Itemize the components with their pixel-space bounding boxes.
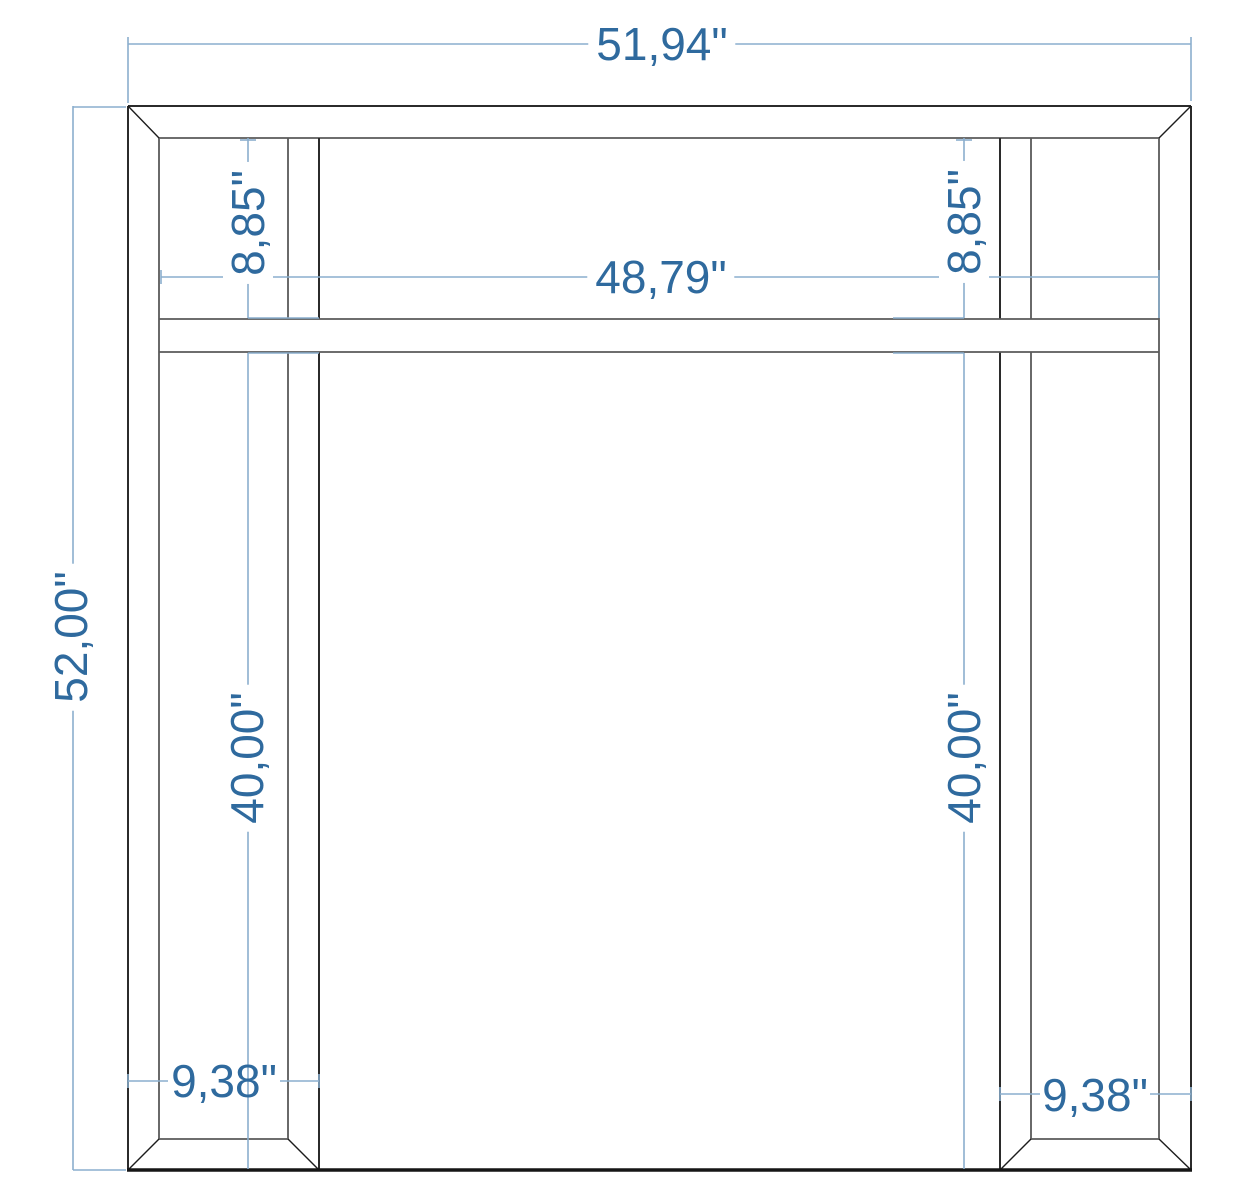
drawing-canvas: 51,94" 52,00" 48,79" 8,85" 8,85" 40,00" … <box>0 0 1252 1199</box>
dimension-label-frieze-height-left: 8,85" <box>223 162 273 284</box>
dimension-label-inner-width: 48,79" <box>587 252 734 302</box>
miter-top-left <box>128 106 159 138</box>
miter-bottom-left-outer <box>129 1139 159 1169</box>
dimension-label-leg-height-right: 40,00" <box>939 684 989 831</box>
drawing-svg <box>0 0 1252 1199</box>
miter-bottom-right-outer <box>1159 1139 1190 1169</box>
dimension-label-leg-width-left: 9,38" <box>171 1058 277 1104</box>
miter-top-right <box>1159 106 1191 138</box>
miter-bottom-left-inner <box>288 1139 318 1169</box>
dimension-label-frieze-height-right: 8,85" <box>939 161 989 283</box>
dimension-label-overall-width: 51,94" <box>588 19 735 69</box>
dimension-label-leg-width-right: 9,38" <box>1042 1072 1148 1118</box>
miter-bottom-right-inner <box>1001 1139 1031 1169</box>
dimension-label-overall-height: 52,00" <box>46 563 96 710</box>
dimension-label-leg-height-left: 40,00" <box>222 684 272 831</box>
